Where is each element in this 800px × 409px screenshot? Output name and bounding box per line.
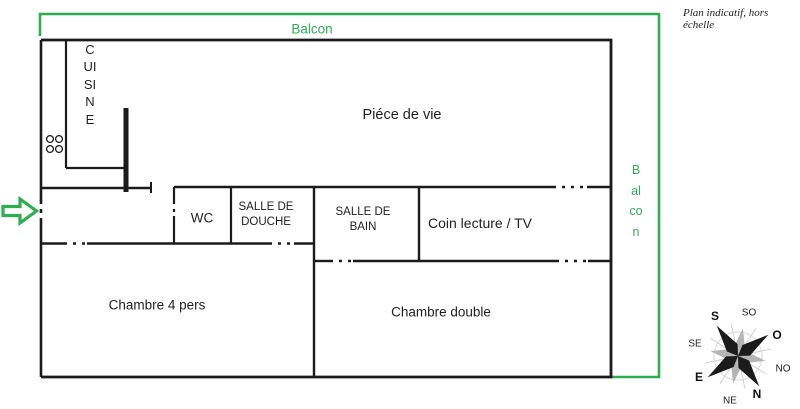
compass-label-s: S	[711, 309, 719, 323]
room-label-wc: WC	[191, 211, 214, 226]
outer-walls	[41, 40, 611, 377]
balcony-right-label: Balcon	[629, 160, 643, 243]
room-label-coin-lecture-tv: Coin lecture / TV	[428, 215, 532, 231]
balcony-outline	[40, 14, 659, 377]
room-label-salle-de-bain: SALLE DE BAIN	[327, 205, 399, 235]
stove-burners-icon	[47, 136, 63, 153]
room-label-piece-de-vie: Piéce de vie	[363, 107, 442, 123]
room-label-salle-de-douche: SALLE DE DOUCHE	[230, 200, 302, 230]
floor-plan-drawing	[0, 0, 800, 409]
floor-plan: Plan indicatif, hors échelle Balcon Balc…	[0, 0, 800, 409]
compass-label-ne: NE	[723, 396, 737, 407]
compass-label-se: SE	[688, 339, 701, 350]
room-label-chambre-4-pers: Chambre 4 pers	[109, 298, 206, 313]
compass-label-no: NO	[776, 364, 791, 375]
room-label-chambre-double: Chambre double	[391, 305, 491, 320]
compass-label-o: O	[772, 328, 781, 342]
entrance-arrow-icon	[3, 199, 37, 223]
interior-walls	[41, 182, 611, 377]
compass-label-e: E	[695, 370, 703, 384]
compass-rose-icon	[704, 322, 772, 390]
balcony-top-label: Balcon	[291, 22, 332, 37]
room-label-cuisine: CUISINE	[83, 41, 97, 128]
compass-label-n: N	[753, 387, 762, 401]
compass-label-so: SO	[742, 308, 756, 319]
plan-note: Plan indicatif, hors échelle	[683, 7, 800, 31]
